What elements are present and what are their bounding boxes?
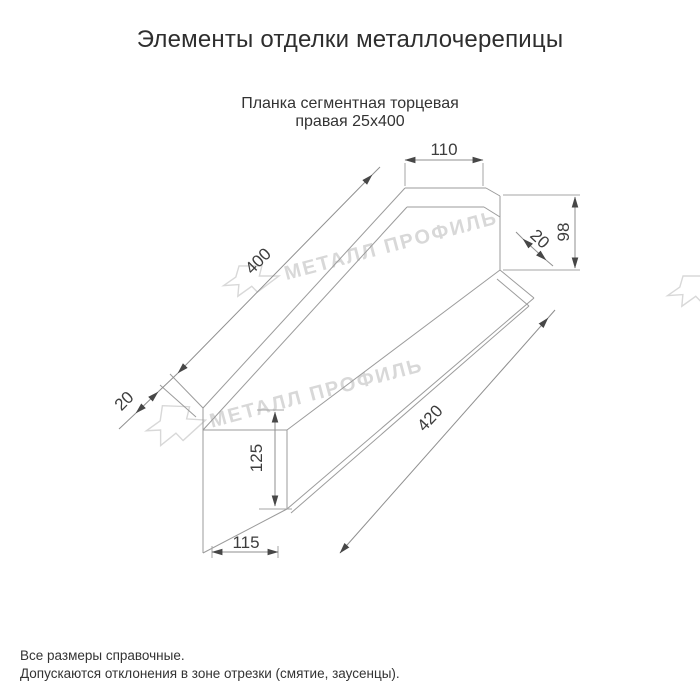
dimension-125: 125 [247,410,292,509]
dimension-115: 115 [212,533,278,558]
dim-label-400: 400 [241,244,274,277]
dimension-20-top: 20 [516,226,553,266]
watermark-fragment-right-edge [664,267,700,310]
dim-label-125: 125 [247,444,266,472]
part-outline [160,188,534,553]
dimension-420: 420 [340,310,555,553]
metall-profil-logo-icon [664,267,700,310]
dim-label-20-bottom: 20 [111,388,138,415]
dim-label-420: 420 [413,401,446,435]
dimension-20-bottom: 20 [111,388,158,429]
footnote-dimensions-reference: Все размеры справочные. [20,648,185,663]
dim-label-110: 110 [430,140,457,159]
dim-label-115: 115 [232,533,259,552]
watermark-text: МЕТАЛЛ ПРОФИЛЬ [207,354,425,432]
dim-label-98: 98 [554,223,573,242]
technical-drawing: МЕТАЛЛ ПРОФИЛЬ МЕТАЛЛ ПРОФИЛЬ [0,0,700,700]
dimension-110: 110 [405,140,483,186]
watermark-text: МЕТАЛЛ ПРОФИЛЬ [282,207,500,285]
footnote-cutting-tolerance: Допускаются отклонения в зоне отрезки (с… [20,666,400,681]
dim-label-20-top: 20 [526,226,553,253]
